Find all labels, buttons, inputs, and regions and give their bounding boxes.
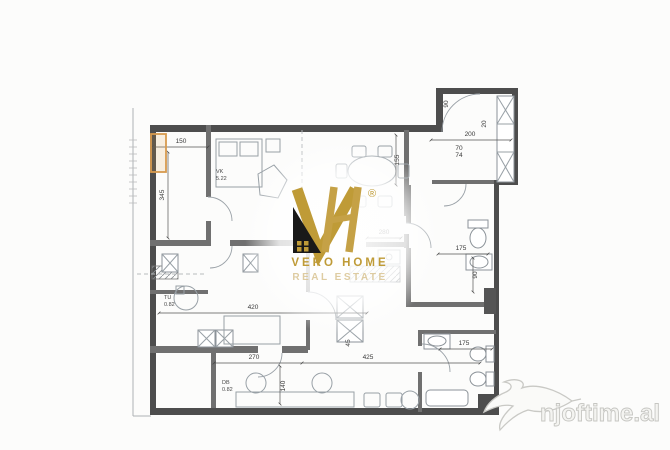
dimension-label: 270 [249,354,260,361]
site-watermark-text: njoftime.al [540,400,660,427]
desk [236,373,354,407]
dimension-label: 70 [455,145,463,152]
dimension-label: 90 [472,271,479,279]
dimension-label: 90 [443,100,450,108]
seating [364,391,419,409]
room-tag-area: 0.82 [222,387,233,393]
njoftime-watermark: njoftime.al [484,380,660,430]
listing-image: 150 345 155 200 70 74 90 20 280 175 90 4… [0,0,670,450]
dimension-label: 150 [176,138,187,145]
dimension-label: 200 [465,131,476,138]
room-tag-code: TU [164,295,171,301]
highlighted-fixture [151,134,166,172]
round-table [174,286,198,310]
brand-tagline: REAL ESTATE [292,272,387,283]
floorplan-drawing: 150 345 155 200 70 74 90 20 280 175 90 4… [0,0,670,450]
room-tag-code: VK [216,169,224,175]
vero-home-logo: ® VERO HOME REAL ESTATE [245,140,440,335]
dimension-label: 425 [363,354,374,361]
dimension-label: 74 [455,152,463,159]
room-tag-code: DB [222,380,230,386]
dimension-label: 175 [459,340,470,347]
bathroom-1-fixtures [466,220,496,314]
brand-name: VERO HOME [291,257,388,269]
dimension-label: 345 [159,189,166,200]
entry-wardrobe [497,96,514,182]
dimension-label: 175 [456,245,467,252]
room-tags: VK 5.22 TU 0.82 DB 0.82 [164,169,233,393]
dimension-label: 45 [345,339,352,347]
dimension-label: 140 [280,380,287,391]
dimension-label: 20 [481,120,488,128]
room-tag-area: 5.22 [216,176,227,182]
balcony-strip [129,108,151,416]
registered-mark: ® [368,188,376,200]
room-tag-area: 0.82 [164,302,175,308]
